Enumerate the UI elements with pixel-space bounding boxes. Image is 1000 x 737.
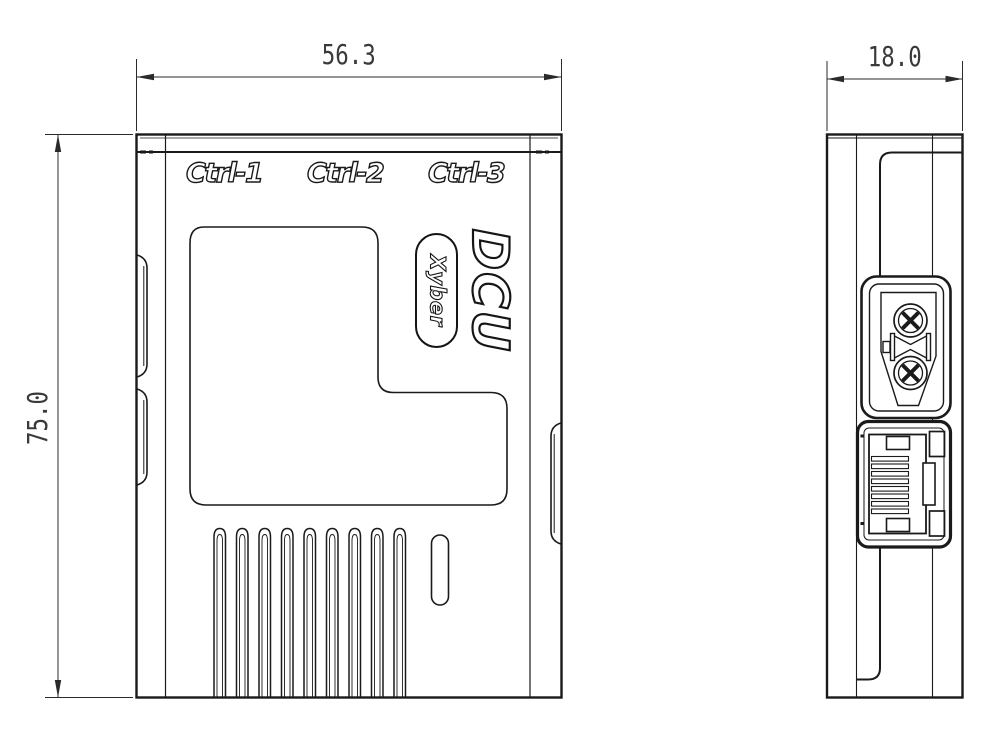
rj45-top-tab: [887, 437, 910, 450]
brand-text: Xyber: [426, 254, 447, 326]
port-label-ctrl-1: Ctrl-1: [186, 160, 262, 187]
left-latch-clips: [137, 255, 147, 485]
width-dimension-text: 56.3: [322, 41, 376, 69]
vent-slot: [259, 529, 271, 698]
vent-slot: [349, 529, 361, 698]
vent-slot: [237, 529, 249, 698]
vent-slot: [214, 529, 226, 698]
front-view: [137, 135, 562, 698]
vent-slots: [214, 529, 406, 698]
side-view: [827, 135, 963, 698]
width-dimension-value: 56.3: [136, 41, 561, 69]
port-label-ctrl-2: Ctrl-2: [307, 160, 383, 187]
right-latch-clip: [551, 423, 561, 544]
port-label-ctrl-3: Ctrl-3: [428, 160, 504, 187]
product-name-text: DCU: [465, 229, 515, 354]
vent-slot: [372, 529, 384, 698]
rj45-bottom-tab: [887, 519, 910, 532]
depth-dimension-text: 18.0: [868, 43, 922, 71]
rj45-right-step: [923, 463, 935, 505]
label-recess-outline: [190, 227, 507, 505]
xt30-power-connector-icon: [862, 277, 951, 419]
depth-dimension-value: 18.0: [827, 43, 963, 71]
vent-slot: [394, 529, 406, 698]
side-recess-contour-top: [880, 153, 963, 278]
height-dimension-value: 75.0: [24, 384, 52, 451]
height-dimension-text: 75.0: [24, 391, 52, 445]
led-window-slot: [432, 535, 449, 605]
dimension-height-front: [45, 135, 133, 698]
dimension-linework: [45, 59, 963, 698]
vent-slot: [327, 529, 339, 698]
power-pin-bottom: [894, 357, 927, 390]
cad-drawing-canvas: 56.3 75.0 18.0 Ctrl-1 Ctrl-2 Ctrl-3 DCU …: [0, 0, 1000, 737]
vent-slot: [304, 529, 316, 698]
power-pin-top: [894, 304, 927, 337]
drawing-linework: [0, 0, 1000, 737]
rj45-ethernet-port-icon: [858, 422, 951, 548]
brand-badge: Xyber: [415, 233, 458, 348]
side-recess-contour-bottom: [857, 547, 881, 680]
vent-slot: [282, 529, 294, 698]
